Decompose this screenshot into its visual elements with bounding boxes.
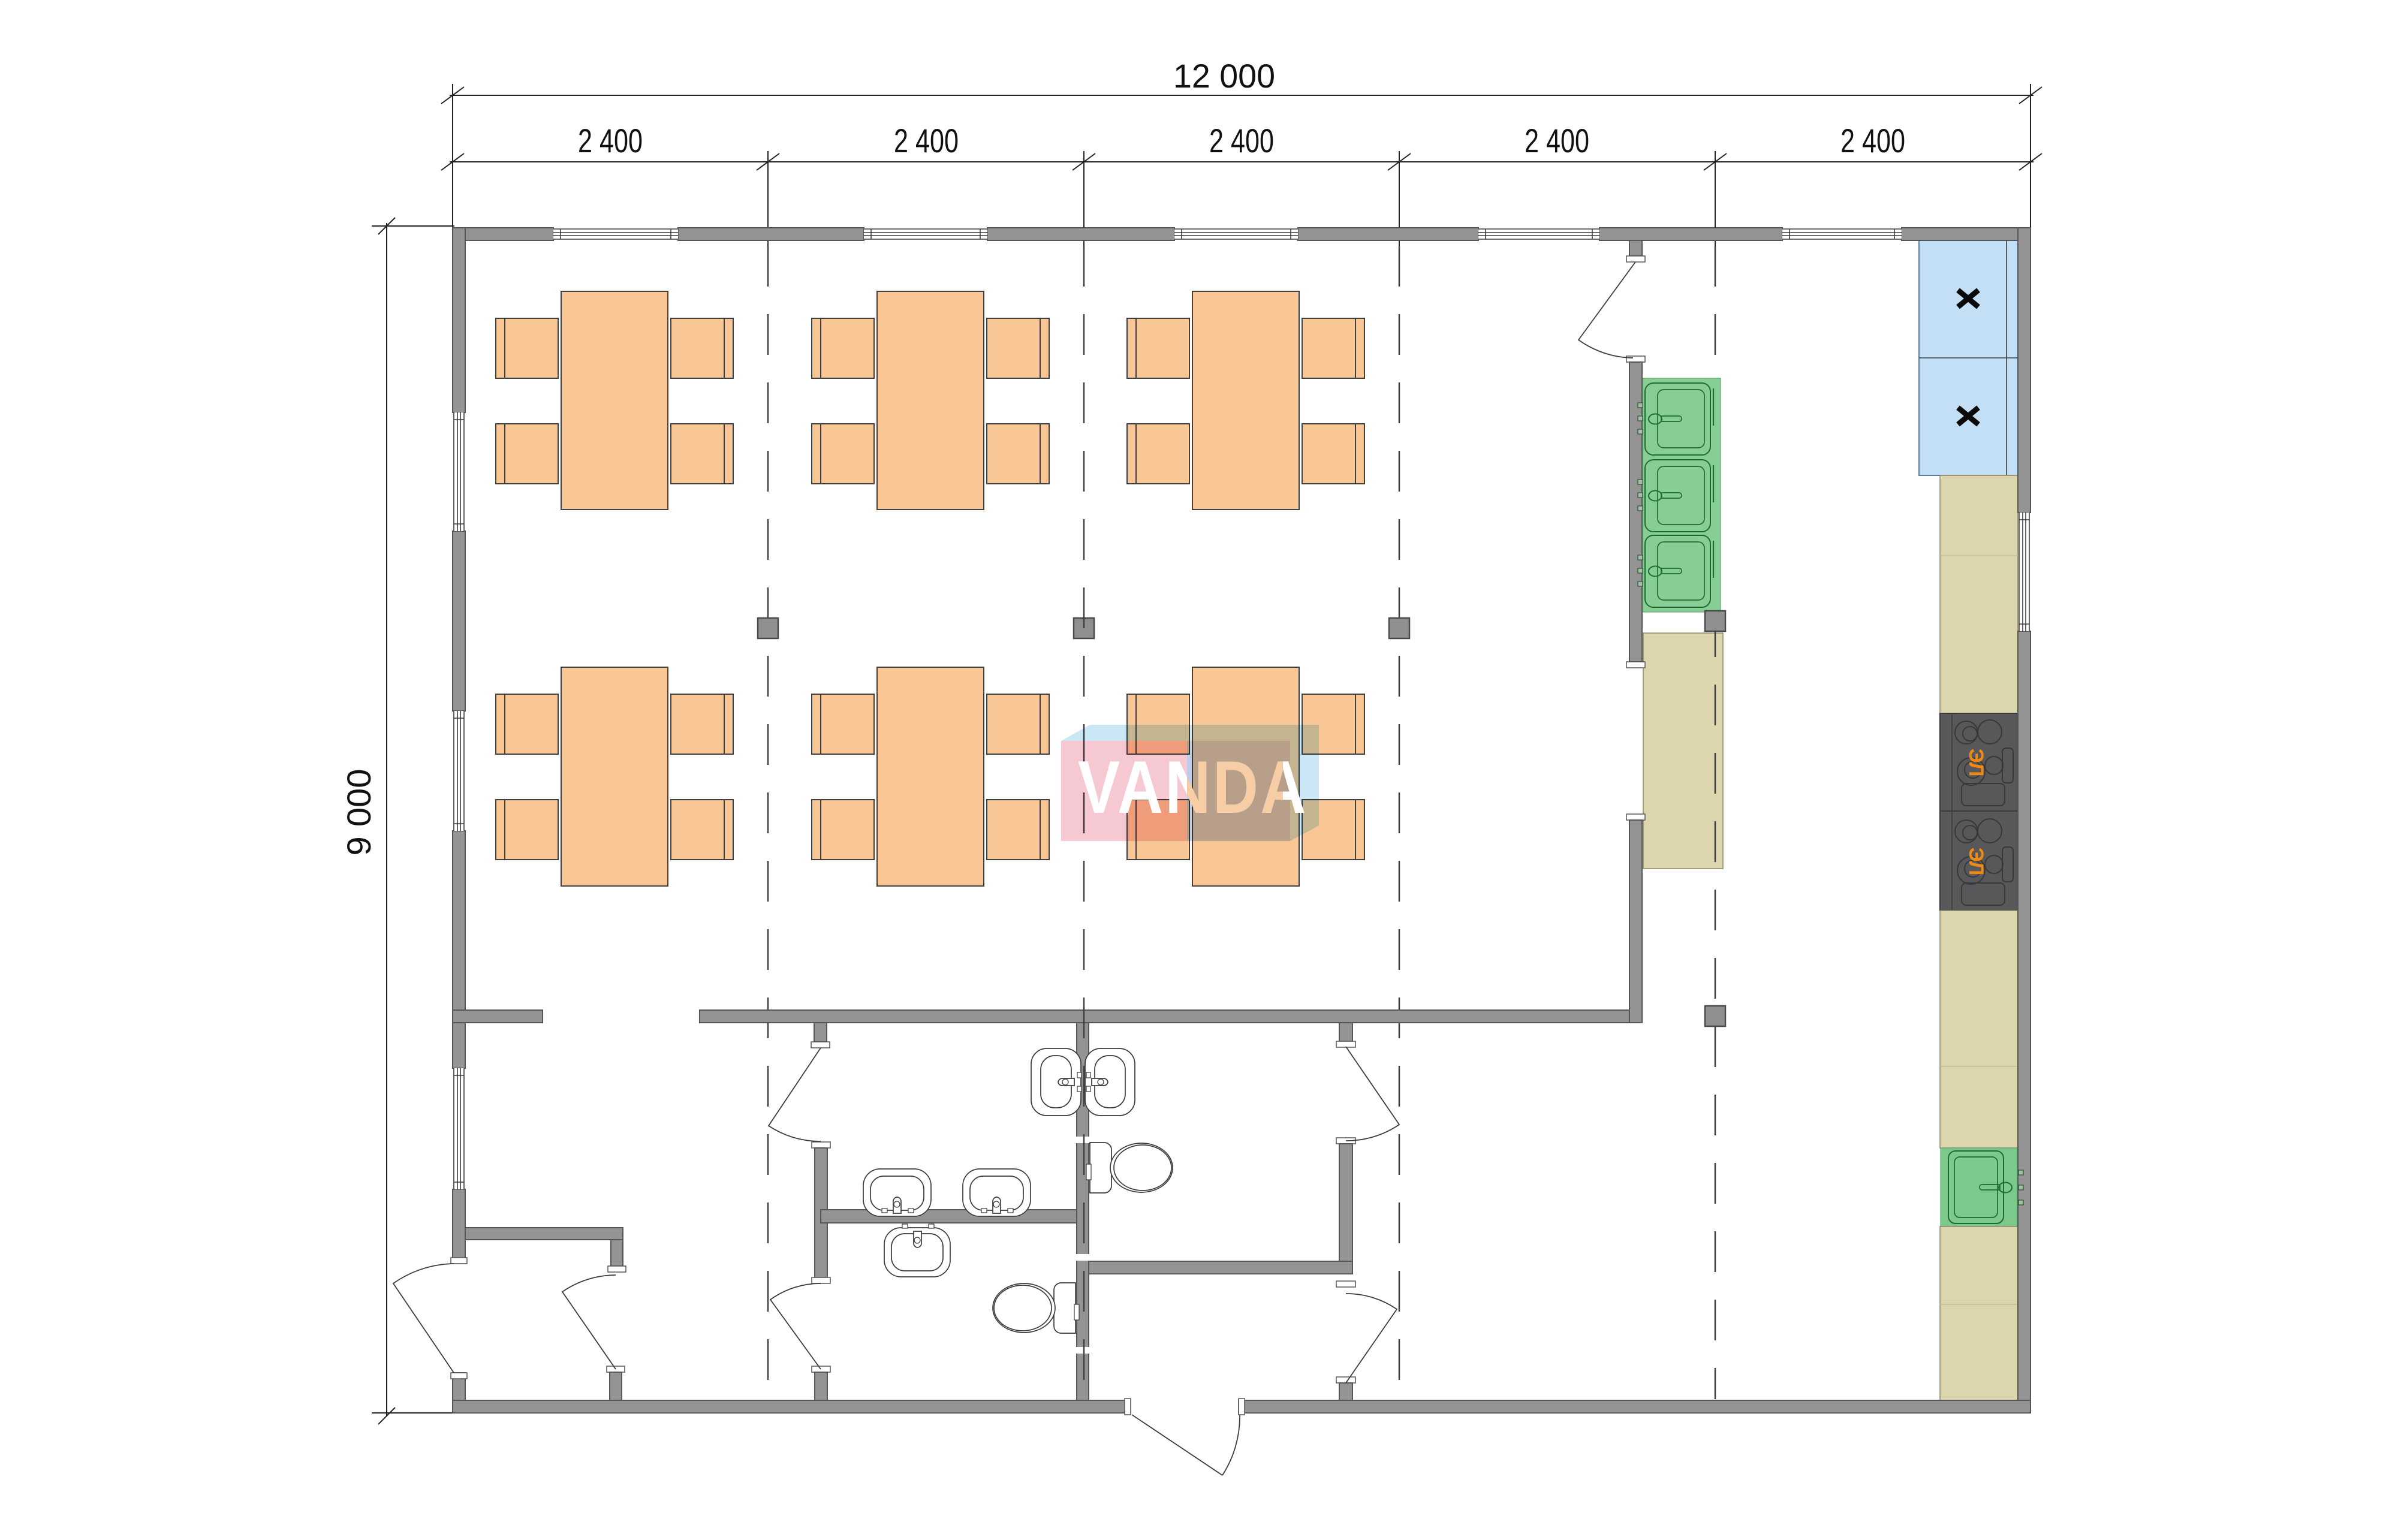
- svg-text:2 400: 2 400: [894, 122, 959, 159]
- svg-text:2 400: 2 400: [1525, 122, 1589, 159]
- svg-text:ЭЛ: ЭЛ: [1965, 749, 1987, 777]
- svg-text:2 400: 2 400: [578, 122, 643, 159]
- svg-text:12 000: 12 000: [1173, 57, 1275, 95]
- svg-text:2 400: 2 400: [1209, 122, 1274, 159]
- svg-text:9 000: 9 000: [340, 769, 378, 856]
- svg-text:2 400: 2 400: [1840, 122, 1905, 159]
- svg-text:ЭЛ: ЭЛ: [1965, 848, 1987, 876]
